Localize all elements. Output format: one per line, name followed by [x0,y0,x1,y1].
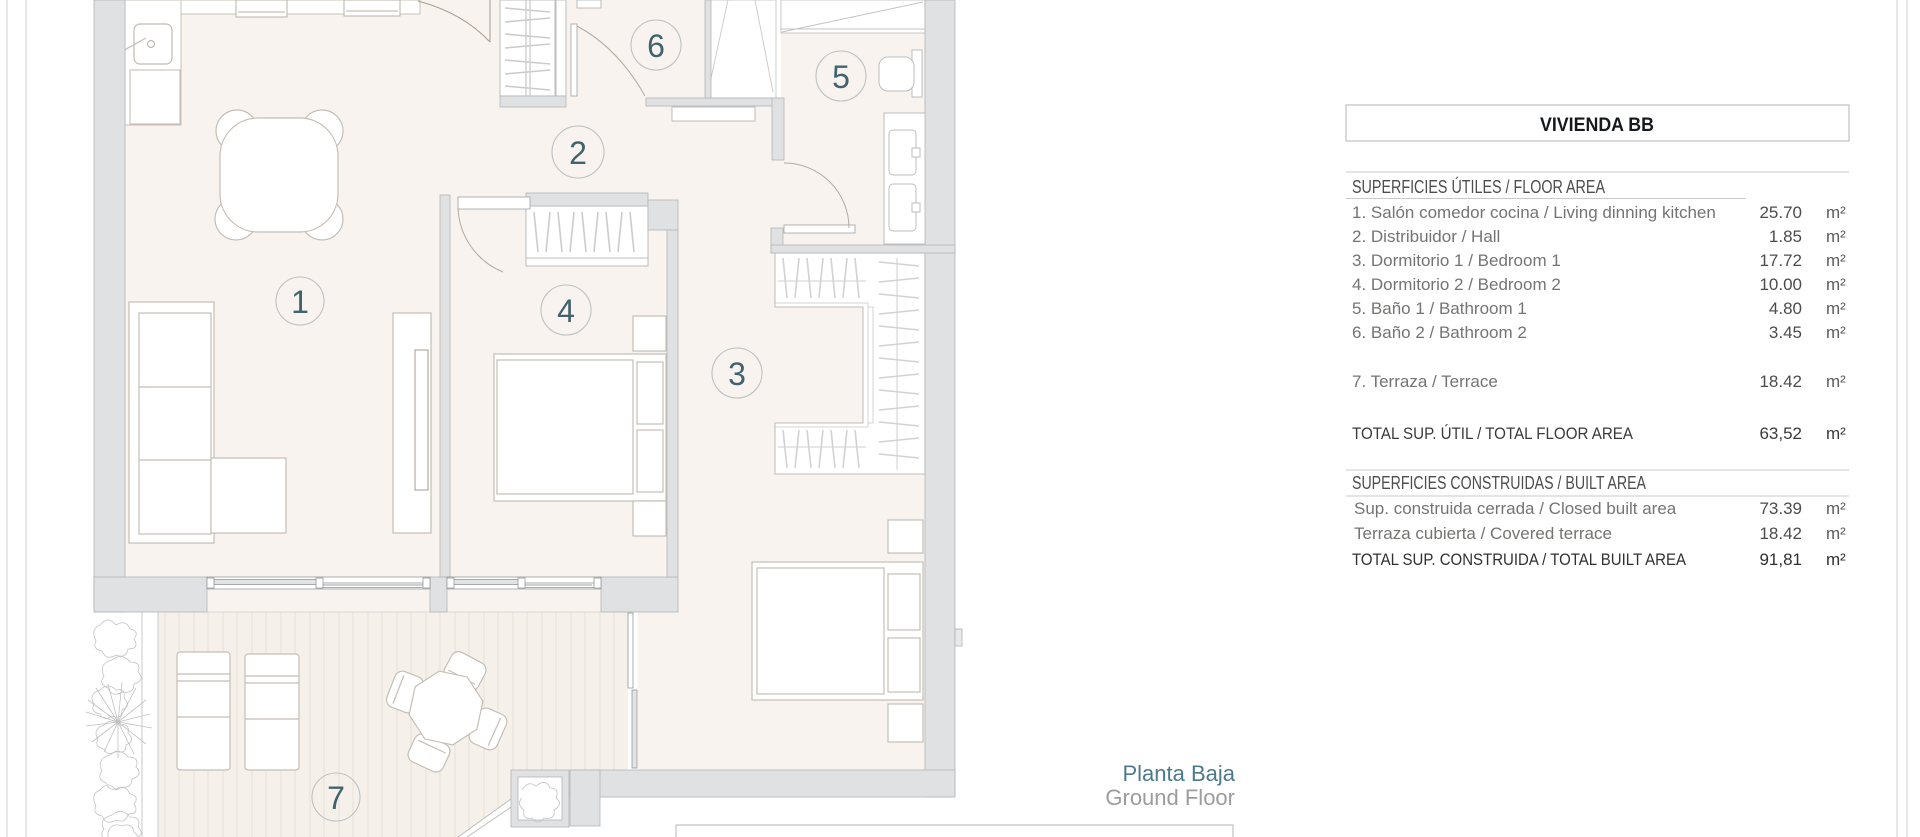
svg-text:3. Dormitorio 1 / Bedroom 1: 3. Dormitorio 1 / Bedroom 1 [1352,251,1561,270]
svg-text:TOTAL SUP. ÚTIL / TOTAL FLOOR: TOTAL SUP. ÚTIL / TOTAL FLOOR AREA [1352,424,1634,443]
svg-text:TOTAL SUP. CONSTRUIDA / TOTAL: TOTAL SUP. CONSTRUIDA / TOTAL BUILT AREA [1352,550,1687,569]
svg-text:18.42: 18.42 [1759,372,1802,391]
svg-text:18.42: 18.42 [1759,524,1802,543]
svg-text:73.39: 73.39 [1759,499,1802,518]
svg-text:4: 4 [557,293,575,329]
svg-text:SUPERFICIES CONSTRUIDAS / BUIL: SUPERFICIES CONSTRUIDAS / BUILT AREA [1352,473,1646,493]
svg-text:1. Salón comedor cocina / Livi: 1. Salón comedor cocina / Living dinning… [1352,203,1716,222]
svg-text:SUPERFICIES ÚTILES / FLOOR ARE: SUPERFICIES ÚTILES / FLOOR AREA [1352,176,1605,197]
svg-text:5. Baño 1 / Bathroom 1: 5. Baño 1 / Bathroom 1 [1352,299,1527,318]
svg-text:m²: m² [1826,203,1846,222]
svg-text:m²: m² [1826,275,1846,294]
svg-text:91,81: 91,81 [1759,550,1802,569]
svg-text:Ground Floor: Ground Floor [1105,785,1235,810]
svg-text:m²: m² [1826,227,1846,246]
svg-text:63,52: 63,52 [1759,424,1802,443]
svg-text:4. Dormitorio 2 / Bedroom 2: 4. Dormitorio 2 / Bedroom 2 [1352,275,1561,294]
svg-text:2: 2 [569,135,587,171]
svg-text:6: 6 [647,28,665,64]
svg-text:7. Terraza / Terrace: 7. Terraza / Terrace [1352,372,1498,391]
svg-text:3: 3 [728,356,746,392]
svg-text:5: 5 [832,59,850,95]
svg-text:1.85: 1.85 [1769,227,1802,246]
svg-text:m²: m² [1826,251,1846,270]
svg-text:m²: m² [1826,550,1846,569]
svg-text:3.45: 3.45 [1769,323,1802,342]
svg-text:17.72: 17.72 [1759,251,1802,270]
svg-text:10.00: 10.00 [1759,275,1802,294]
svg-text:6. Baño 2 / Bathroom 2: 6. Baño 2 / Bathroom 2 [1352,323,1527,342]
svg-text:4.80: 4.80 [1769,299,1802,318]
svg-text:m²: m² [1826,372,1846,391]
svg-text:m²: m² [1826,499,1846,518]
svg-text:25.70: 25.70 [1759,203,1802,222]
svg-text:VIVIENDA BB: VIVIENDA BB [1540,115,1654,136]
svg-text:m²: m² [1826,323,1846,342]
svg-text:Terraza cubierta / Covered ter: Terraza cubierta / Covered terrace [1354,524,1612,543]
svg-text:7: 7 [327,780,345,816]
svg-text:m²: m² [1826,524,1846,543]
svg-text:Planta Baja: Planta Baja [1122,761,1235,786]
svg-text:m²: m² [1826,299,1846,318]
svg-text:2. Distribuidor / Hall: 2. Distribuidor / Hall [1352,227,1500,246]
svg-text:Sup. construida cerrada / Clos: Sup. construida cerrada / Closed built a… [1354,499,1677,518]
svg-text:m²: m² [1826,424,1846,443]
svg-text:1: 1 [291,284,309,320]
